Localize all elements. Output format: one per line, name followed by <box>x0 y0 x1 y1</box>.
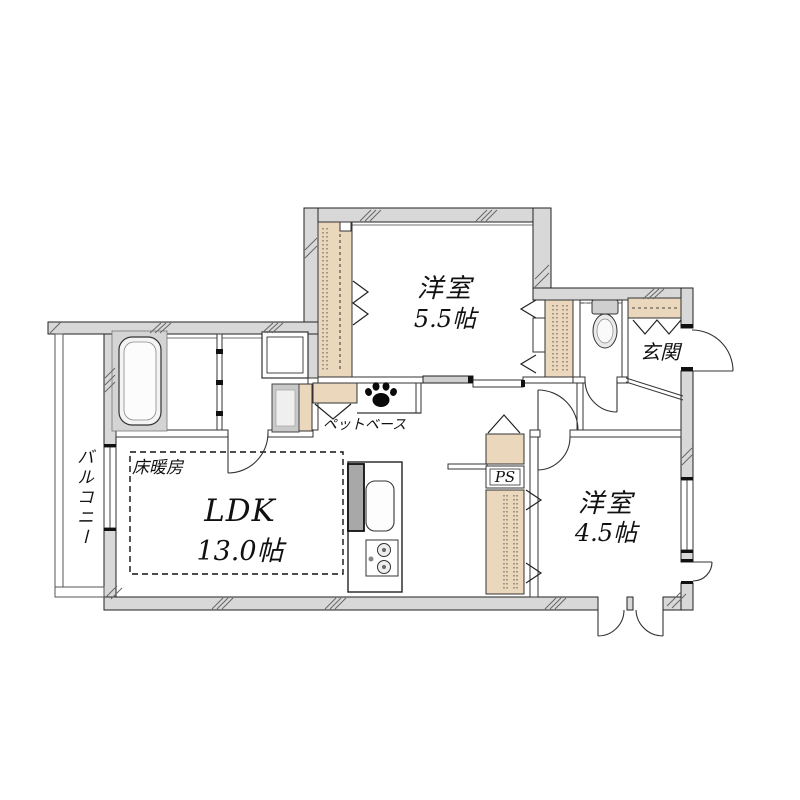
toilet-icon <box>592 300 618 348</box>
shoe-cabinet <box>628 298 681 318</box>
hall-closet <box>486 434 524 464</box>
bedroom1-sliding-door <box>423 376 525 387</box>
floor-heating-area <box>130 452 343 574</box>
entrance-step <box>626 378 683 400</box>
closet-left-folding-door <box>353 281 368 325</box>
entrance-door <box>681 324 733 371</box>
pet-base-folding-door <box>315 404 351 419</box>
hall-door <box>538 390 578 430</box>
washroom-door <box>228 433 268 473</box>
vanity-icon <box>262 332 308 378</box>
closet-right-door-top <box>521 300 536 318</box>
pipe-space-box <box>486 466 524 488</box>
bedroom2-closet <box>486 490 524 594</box>
ldk-balcony-window <box>104 444 116 531</box>
hall-closet-door <box>488 415 520 433</box>
sink-icon <box>366 481 394 531</box>
balcony-rail <box>55 334 104 597</box>
kitchen <box>348 462 402 592</box>
paw-icon <box>364 382 398 407</box>
laundry-side-shelf <box>299 384 312 431</box>
floor-plan-canvas: 洋室 5.5帖 洋室 4.5帖 LDK 13.0帖 床暖房 ペットベース 玄関 … <box>0 0 800 800</box>
closet-right-door-bottom <box>521 355 536 373</box>
bedroom1-closet-right <box>545 300 573 377</box>
toilet-room <box>581 300 618 348</box>
side-service-door <box>681 559 712 584</box>
bedroom2-window <box>681 477 693 553</box>
bedroom2-double-door <box>598 610 663 636</box>
floor-plan-drawing <box>0 0 800 800</box>
pet-base-shelf <box>313 383 357 403</box>
bathroom <box>112 331 223 431</box>
stove-icon <box>366 540 398 576</box>
bedroom2-door <box>538 437 570 470</box>
shoe-cabinet-doors <box>633 320 681 334</box>
toilet-door <box>585 380 617 412</box>
